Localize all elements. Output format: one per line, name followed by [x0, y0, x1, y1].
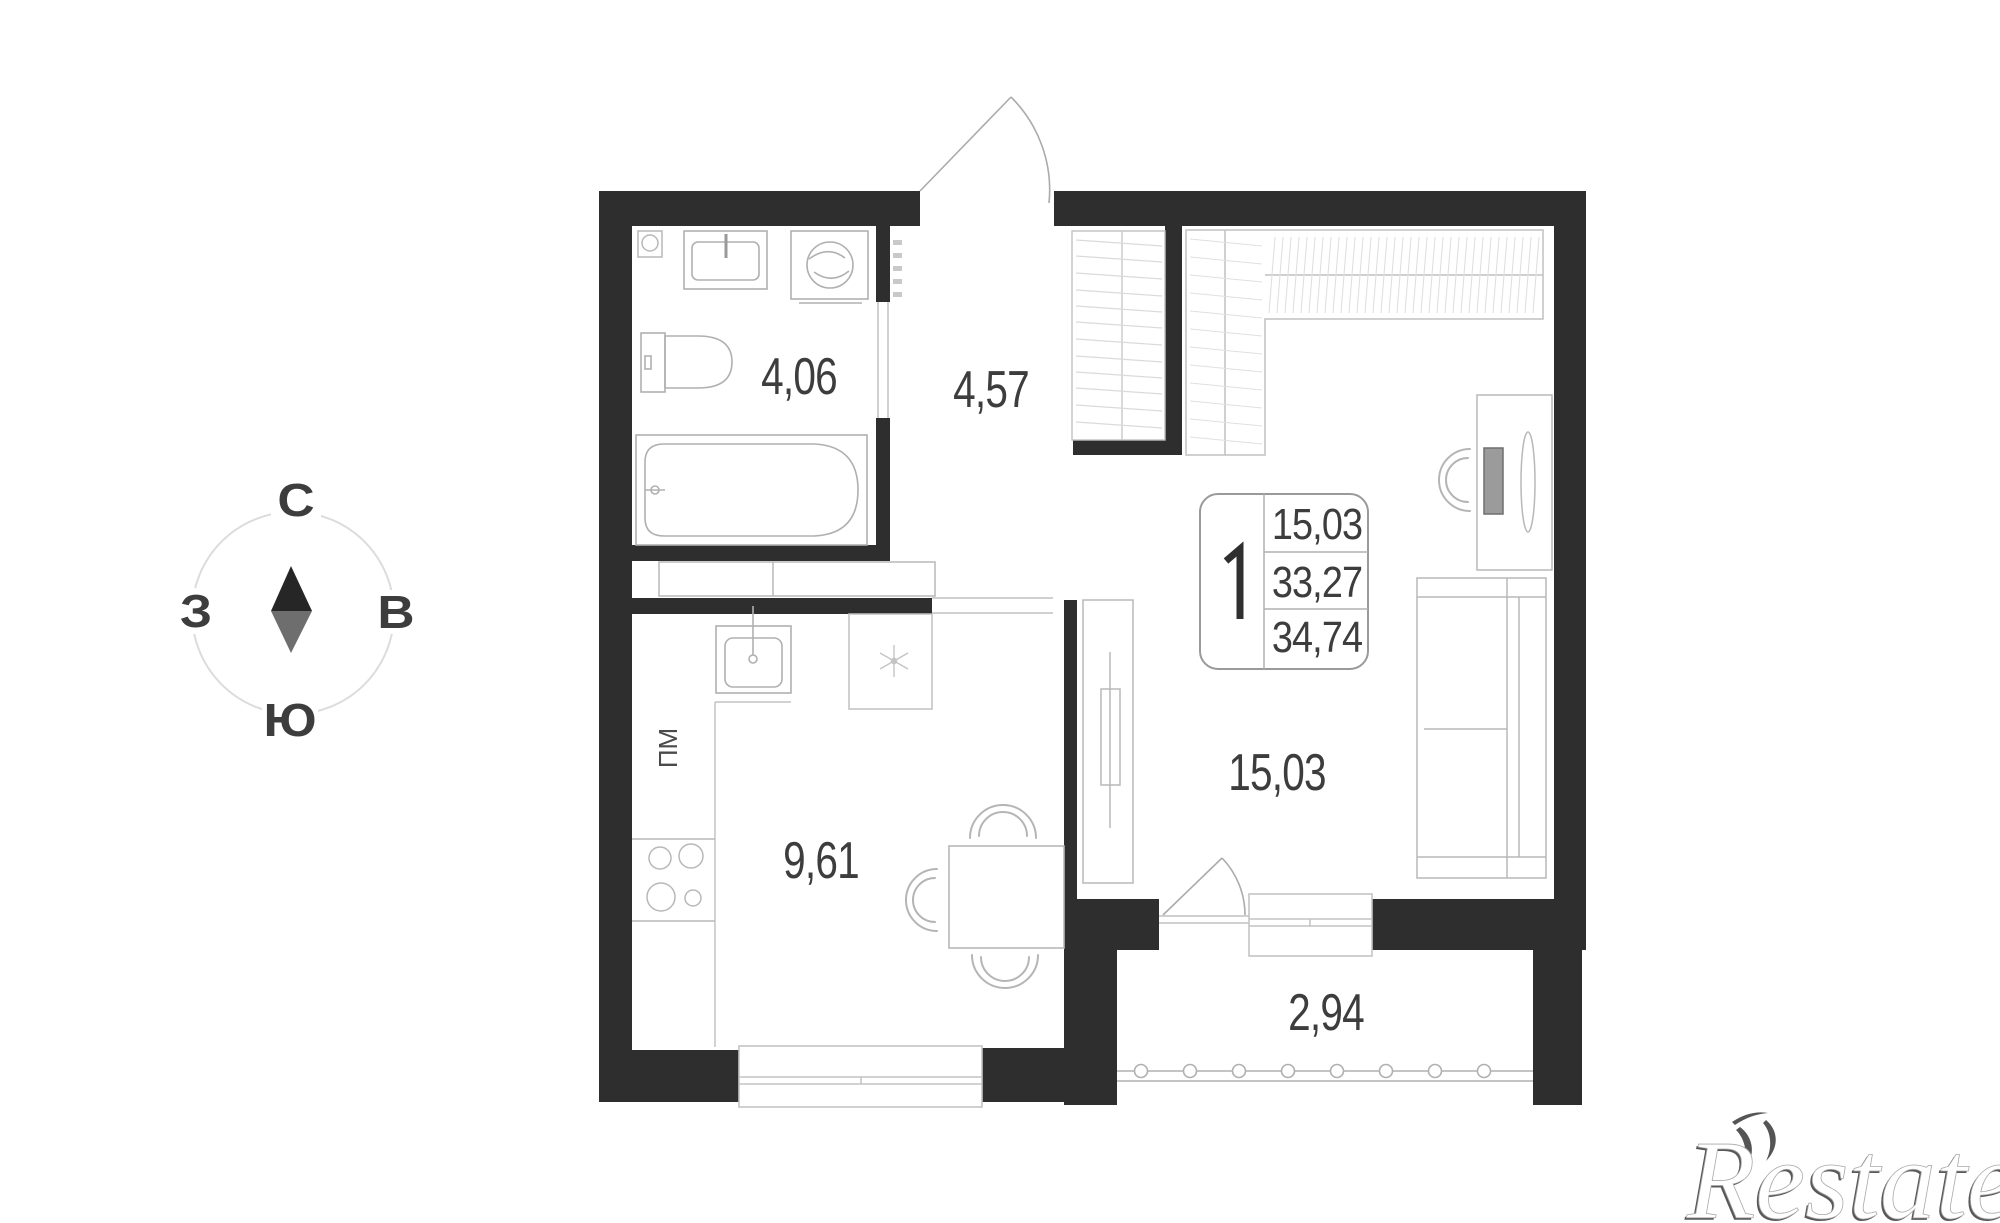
svg-text:Ю: Ю [263, 696, 316, 747]
svg-text:4,57: 4,57 [953, 360, 1029, 418]
svg-text:Restate: Restate [1686, 1119, 2000, 1223]
svg-text:В: В [377, 588, 414, 639]
svg-text:ПМ: ПМ [653, 728, 683, 768]
svg-text:34,74: 34,74 [1272, 612, 1362, 661]
svg-text:С: С [277, 476, 314, 527]
svg-text:33,27: 33,27 [1272, 557, 1362, 606]
svg-text:15,03: 15,03 [1228, 743, 1326, 801]
svg-text:9,61: 9,61 [783, 831, 859, 889]
svg-text:15,03: 15,03 [1272, 499, 1362, 548]
svg-text:З: З [180, 587, 212, 638]
svg-text:2,94: 2,94 [1288, 983, 1364, 1041]
svg-text:4,06: 4,06 [761, 347, 837, 405]
